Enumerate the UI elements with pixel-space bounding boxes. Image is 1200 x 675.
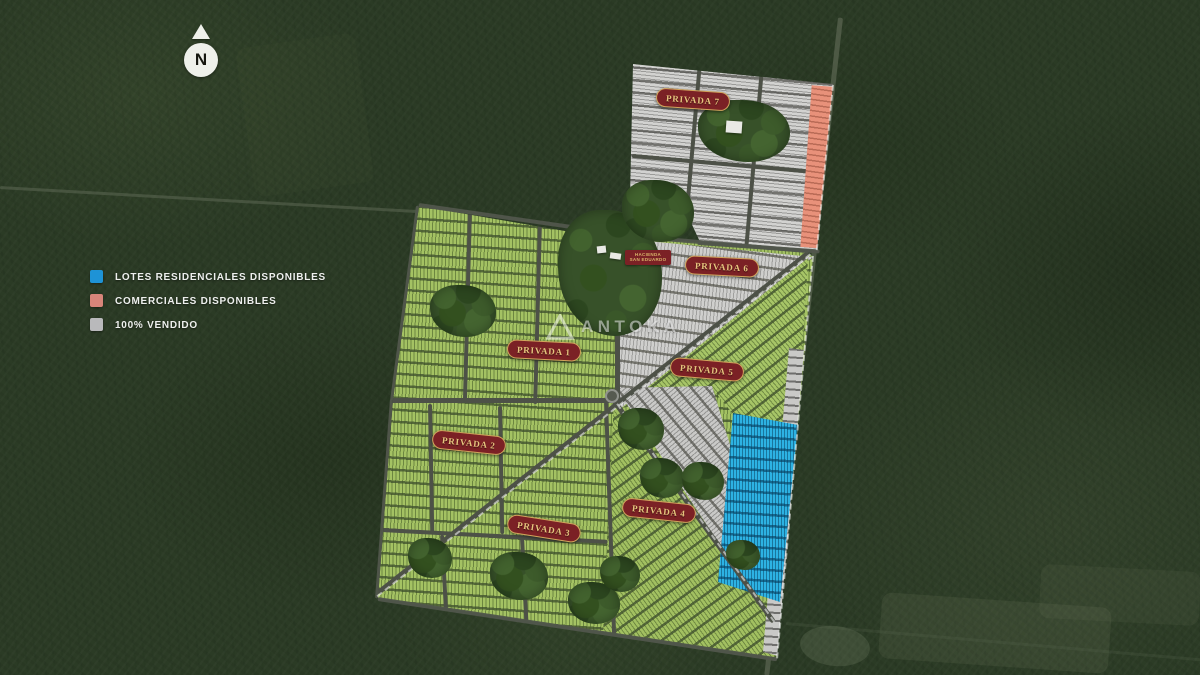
legend-label: COMERCIALES DISPONIBLES [115, 295, 277, 307]
tree-cluster [640, 458, 684, 498]
hacienda-label: HACIENDA SAN EDUARDO [625, 250, 671, 265]
legend-item-residential-available: LOTES RESIDENCIALES DISPONIBLES [90, 270, 337, 283]
tree-cluster [618, 408, 664, 450]
legend: LOTES RESIDENCIALES DISPONIBLES COMERCIA… [90, 270, 337, 342]
privada-1-label: PRIVADA 1 [507, 339, 582, 362]
legend-label: LOTES RESIDENCIALES DISPONIBLES [115, 271, 326, 283]
blue-swatch-icon [90, 270, 103, 283]
clubhouse-building [726, 120, 743, 133]
legend-item-sold: 100% VENDIDO [90, 318, 337, 331]
hacienda-building [597, 246, 607, 254]
watermark: ANTOKA [546, 314, 680, 340]
legend-label: 100% VENDIDO [115, 319, 198, 331]
salmon-swatch-icon [90, 294, 103, 307]
tree-cluster [408, 538, 452, 578]
antoka-logo-icon [546, 314, 574, 340]
legend-item-commercial-available: COMERCIALES DISPONIBLES [90, 294, 337, 307]
tree-cluster [682, 462, 724, 500]
watermark-text: ANTOKA [581, 317, 680, 337]
terrain-patch [1039, 564, 1200, 626]
street [533, 220, 542, 404]
street [428, 404, 434, 534]
tree-cluster [600, 556, 640, 592]
north-arrow-icon [192, 24, 210, 39]
compass: N [168, 24, 234, 77]
roundabout [605, 389, 619, 403]
hacienda-label-line2: SAN EDUARDO [627, 257, 669, 262]
gray-swatch-icon [90, 318, 103, 331]
tree-cluster [726, 540, 760, 570]
terrain-patch [235, 32, 375, 197]
street [498, 406, 504, 534]
compass-letter: N [184, 43, 218, 77]
street [390, 398, 618, 403]
privada-6-label: PRIVADA 6 [685, 255, 760, 278]
satellite-map: PRIVADA 1 PRIVADA 2 PRIVADA 3 PRIVADA 4 … [0, 0, 1200, 675]
